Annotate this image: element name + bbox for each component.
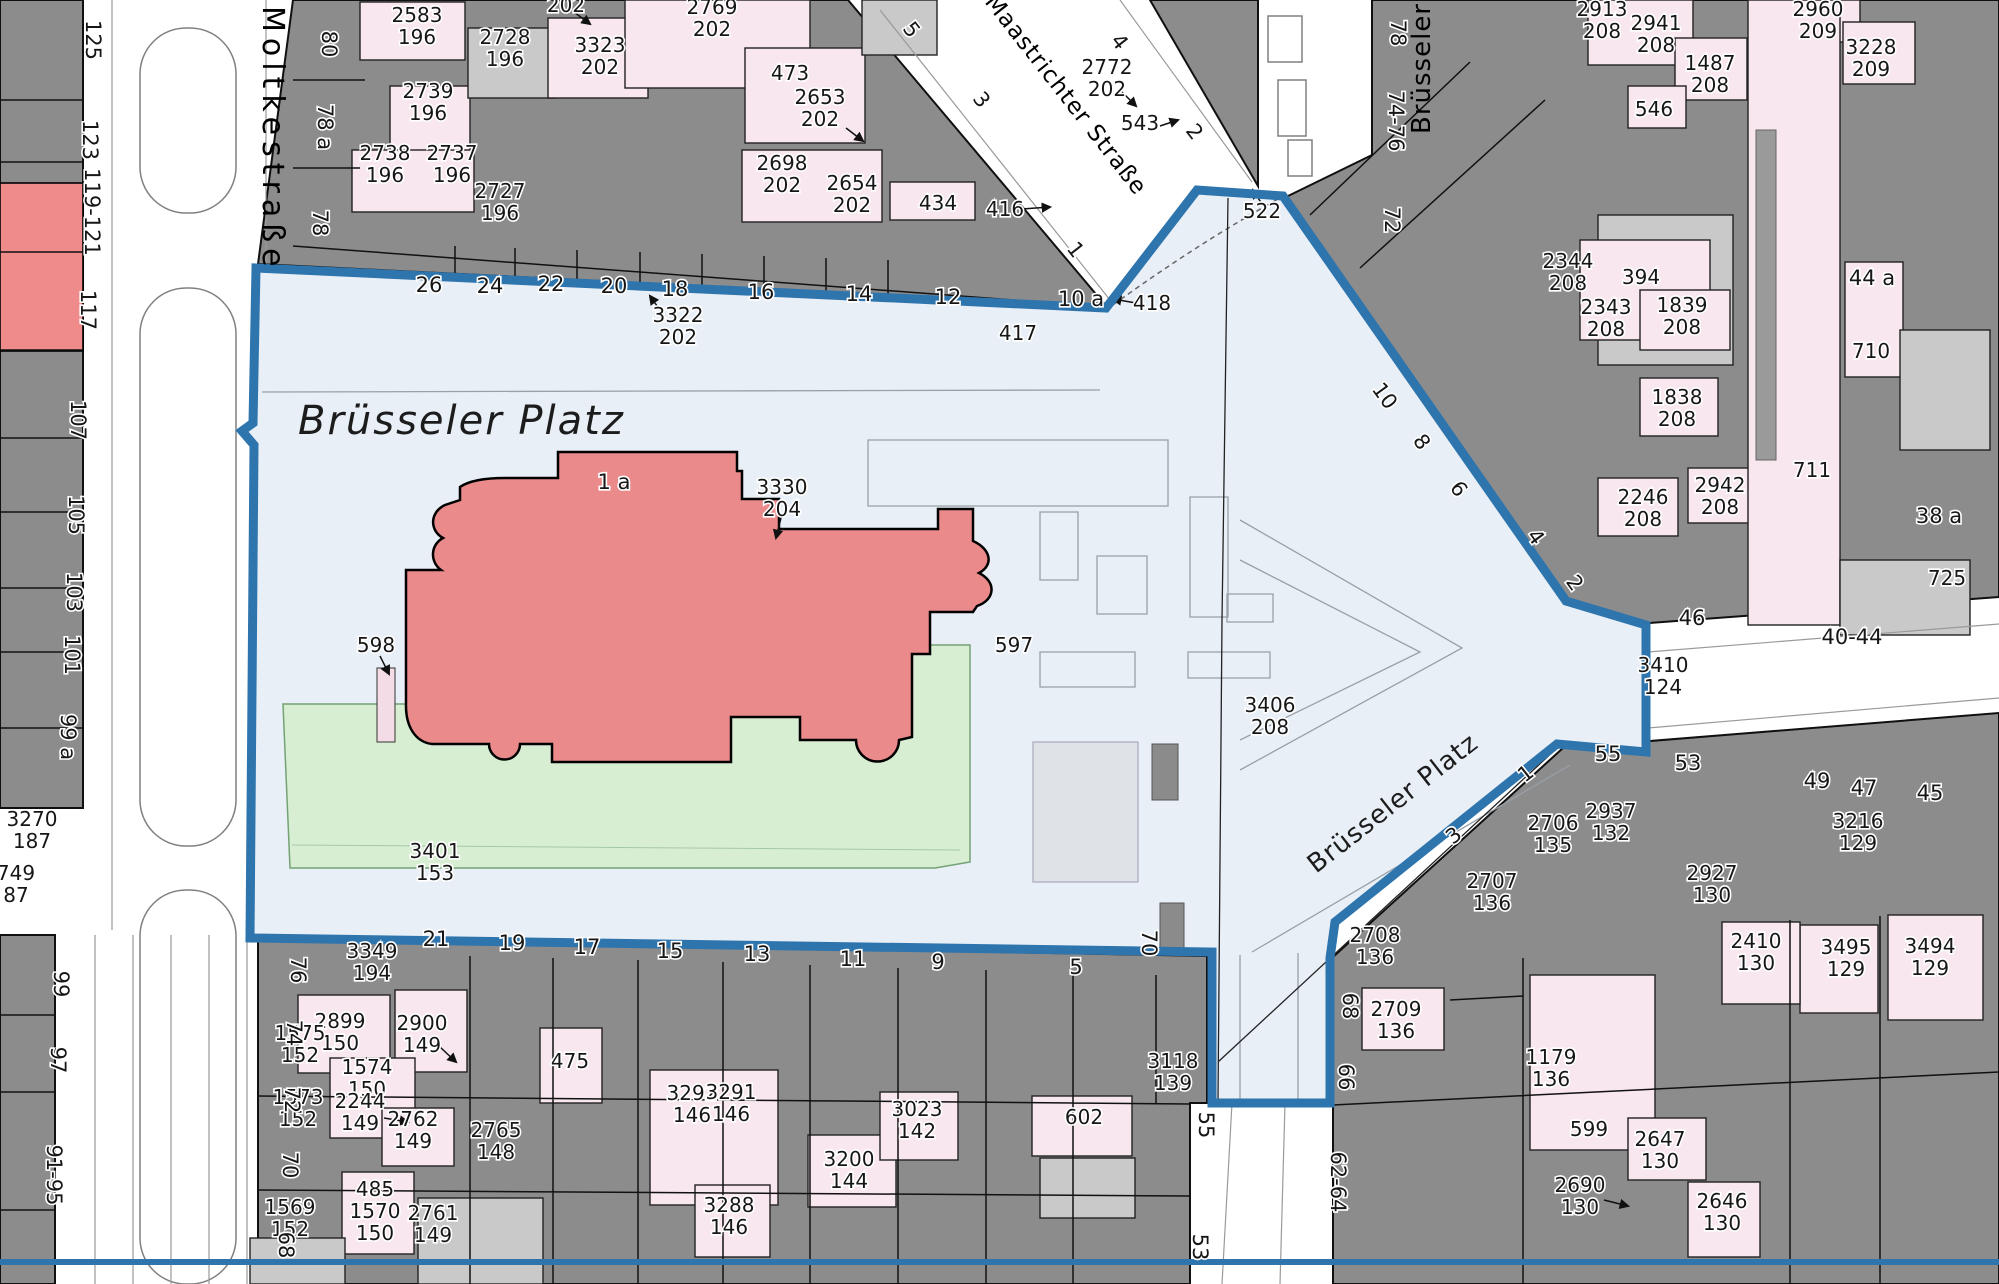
parcel-label: 2343208 <box>1581 295 1632 341</box>
parcel-label: 3023142 <box>892 1097 943 1143</box>
house-number: 22 <box>538 272 565 296</box>
house-number: 21 <box>423 927 450 951</box>
parcel-label: 2738196 <box>360 141 411 187</box>
house-number: 80 <box>317 31 341 58</box>
parcel-label: 546 <box>1635 97 1673 121</box>
parcel-label: 3495129 <box>1821 935 1872 981</box>
parcel-label: 599 <box>1570 1117 1608 1141</box>
parcel-label: 394 <box>1622 265 1660 289</box>
parcel-label: 2728196 <box>480 25 531 71</box>
house-number: 13 <box>744 942 771 966</box>
parcel-label: 2772202 <box>1082 55 1133 101</box>
house-number: 47 <box>1851 776 1878 800</box>
parcel-label: 434 <box>919 191 957 215</box>
parcel-label: 598 <box>357 633 395 657</box>
parcel-label: 3323202 <box>575 33 626 79</box>
parcel-label: 418 <box>1133 291 1171 315</box>
crossing-island <box>1288 140 1312 176</box>
house-number: 49 <box>1804 769 1831 793</box>
parcel-label: 2646130 <box>1697 1189 1748 1235</box>
parcel-label: 2698202 <box>757 151 808 197</box>
parcel-label: 3270187 <box>7 807 58 853</box>
parcel-label: 3228209 <box>1846 35 1897 81</box>
parcel-label: 3322202 <box>653 303 704 349</box>
parcel-label: 2344208 <box>1543 249 1594 295</box>
parcel-label: 2739196 <box>403 79 454 125</box>
parcel-label: 2941208 <box>1631 11 1682 57</box>
parcel-label: 3216129 <box>1833 809 1884 855</box>
house-number: 44 a <box>1849 266 1895 290</box>
parcel-label: 2707136 <box>1467 869 1518 915</box>
median-island <box>140 28 236 213</box>
parcel-label: 2647130 <box>1635 1127 1686 1173</box>
house-number: 107 <box>66 400 90 440</box>
parcel-label: 2927130 <box>1687 861 1738 907</box>
parcel-label: 3406208 <box>1245 693 1296 739</box>
parcel-label: 3410124 <box>1638 653 1689 699</box>
house-number: 10 a <box>1058 287 1104 311</box>
house-number: 78 <box>308 210 332 237</box>
house-number: 9 <box>931 950 944 974</box>
house-number: 62-64 <box>1326 1151 1350 1212</box>
house-number: 40-44 <box>1821 625 1882 649</box>
cadastral-map-viewport[interactable]: MoltkestraßeMaastrichter StraßeBrüsseler… <box>0 0 1999 1284</box>
parcel-label: 485 <box>356 1177 394 1201</box>
parcel-label: 3401153 <box>410 839 461 885</box>
house-number: 91-95 <box>42 1144 66 1205</box>
median-island <box>140 890 236 1284</box>
parcel-label: 2762149 <box>388 1107 439 1153</box>
house-number: 26 <box>416 273 443 297</box>
parcel-label: 1838208 <box>1652 385 1703 431</box>
house-number: 74 <box>282 1020 306 1047</box>
parcel-label: 2708136 <box>1350 923 1401 969</box>
parcel-label: 602 <box>1065 1105 1103 1129</box>
house-number: 70 <box>278 1152 302 1179</box>
parcel-label: 3291146 <box>706 1080 757 1126</box>
parcel-label: 2937132 <box>1586 799 1637 845</box>
parcel-598-sliver <box>377 668 395 742</box>
parcel-label: 473 <box>771 61 809 85</box>
house-number: 15 <box>657 939 684 963</box>
house-number: 123 <box>78 120 102 160</box>
parcel-label: 2709136 <box>1371 997 1422 1043</box>
house-number: 55 <box>1595 742 1622 766</box>
parcel-label: 1179136 <box>1526 1045 1577 1091</box>
parcel-label: 2706135 <box>1528 811 1579 857</box>
parcel-label: 725 <box>1928 566 1966 590</box>
house-number: 18 <box>662 277 689 301</box>
house-number: 72 <box>1380 207 1404 234</box>
street-name: Brüsseler S <box>1407 0 1437 134</box>
parcel-label: 2410130 <box>1731 929 1782 975</box>
house-number: 117 <box>76 290 100 330</box>
house-number: 72 <box>280 1087 304 1114</box>
house-number: 11 <box>840 947 867 971</box>
median-island <box>140 288 236 846</box>
parcel-label: 475 <box>551 1049 589 1073</box>
parcel-label: 2244149 <box>335 1089 386 1135</box>
parcel-label: 1839208 <box>1657 293 1708 339</box>
parcel-label: 202 <box>547 0 585 17</box>
parcel-label: 3200144 <box>824 1147 875 1193</box>
parcel-label: 711 <box>1793 458 1831 482</box>
crossing-island <box>1278 80 1306 136</box>
house-number: 16 <box>748 280 775 304</box>
house-number: 17 <box>574 935 601 959</box>
parcel-label: 2769202 <box>687 0 738 41</box>
street-name: Moltkestraße <box>255 6 290 273</box>
parcel-label: 3118139 <box>1148 1049 1199 1095</box>
parcel-label: 2737196 <box>427 141 478 187</box>
house-number: 53 <box>1675 751 1702 775</box>
parcel-label: 416 <box>986 197 1024 221</box>
house-number: 103 <box>62 572 86 612</box>
house-number: 5 <box>1069 955 1082 979</box>
house-number: 74-76 <box>1384 90 1408 151</box>
parcel-label: 543 <box>1121 111 1159 135</box>
parcel-label: 2765148 <box>471 1118 522 1164</box>
house-number: 45 <box>1917 781 1944 805</box>
parcel-label: 417 <box>999 321 1037 345</box>
parcel-label: 2942208 <box>1695 473 1746 519</box>
house-number: 55 <box>1194 1112 1218 1139</box>
house-number: 99 <box>49 971 73 998</box>
parcel-label: 522 <box>1243 199 1281 223</box>
parcel-label: 2761149 <box>408 1201 459 1247</box>
parcel-label: 1487208 <box>1685 51 1736 97</box>
house-number: 14 <box>846 282 873 306</box>
parcel-label: 2960209 <box>1793 0 1844 43</box>
house-number: 46 <box>1679 606 1706 630</box>
house-number: 66 <box>1334 1064 1358 1091</box>
parcel-label: 597 <box>995 633 1033 657</box>
parcel-label: 2727196 <box>475 179 526 225</box>
parcel-label: 2913208 <box>1577 0 1628 43</box>
parcel-label: 710 <box>1852 339 1890 363</box>
house-number: 97 <box>46 1047 70 1074</box>
house-number: 119-121 <box>80 168 104 256</box>
red-parcel-strip <box>0 183 83 351</box>
parcel-label: 1570150 <box>350 1199 401 1245</box>
house-number: 99 a <box>56 714 80 760</box>
house-number: 125 <box>81 20 105 60</box>
house-number: 1 a <box>598 470 631 494</box>
parcel-label: 3349194 <box>347 939 398 985</box>
house-number: 53 <box>1188 1234 1212 1261</box>
house-number: 19 <box>499 931 526 955</box>
crossing-island <box>1268 16 1302 62</box>
parcel-label: 3288146 <box>704 1193 755 1239</box>
house-number: 68 <box>1338 993 1362 1020</box>
house-number: 20 <box>601 274 628 298</box>
house-number: 38 a <box>1916 504 1962 528</box>
parcel-label: 2246208 <box>1618 485 1669 531</box>
parcel-label: 3330204 <box>757 475 808 521</box>
house-number: 68 <box>274 1232 298 1259</box>
house-number: 12 <box>935 285 962 309</box>
block-moltke-west-south <box>0 935 55 1284</box>
house-number: 78 a <box>313 104 337 150</box>
plaza-name-label: Brüsseler Platz <box>298 398 625 444</box>
parcel-label: 2900149 <box>397 1011 448 1057</box>
parcel-label: 2690130 <box>1555 1173 1606 1219</box>
house-number: 24 <box>477 274 504 298</box>
house-number: 101 <box>60 635 84 675</box>
cadastral-map-canvas[interactable]: MoltkestraßeMaastrichter StraßeBrüsseler… <box>0 0 1999 1284</box>
parcel-label: 3494129 <box>1905 934 1956 980</box>
parcel-label: 2653202 <box>795 85 846 131</box>
parcel-label: 2654202 <box>827 171 878 217</box>
house-number: 76 <box>286 957 310 984</box>
parcel-label: 2583196 <box>392 3 443 49</box>
house-number: 105 <box>64 495 88 535</box>
house-number: 70 <box>1137 930 1161 957</box>
house-number: 78 <box>1386 20 1410 47</box>
